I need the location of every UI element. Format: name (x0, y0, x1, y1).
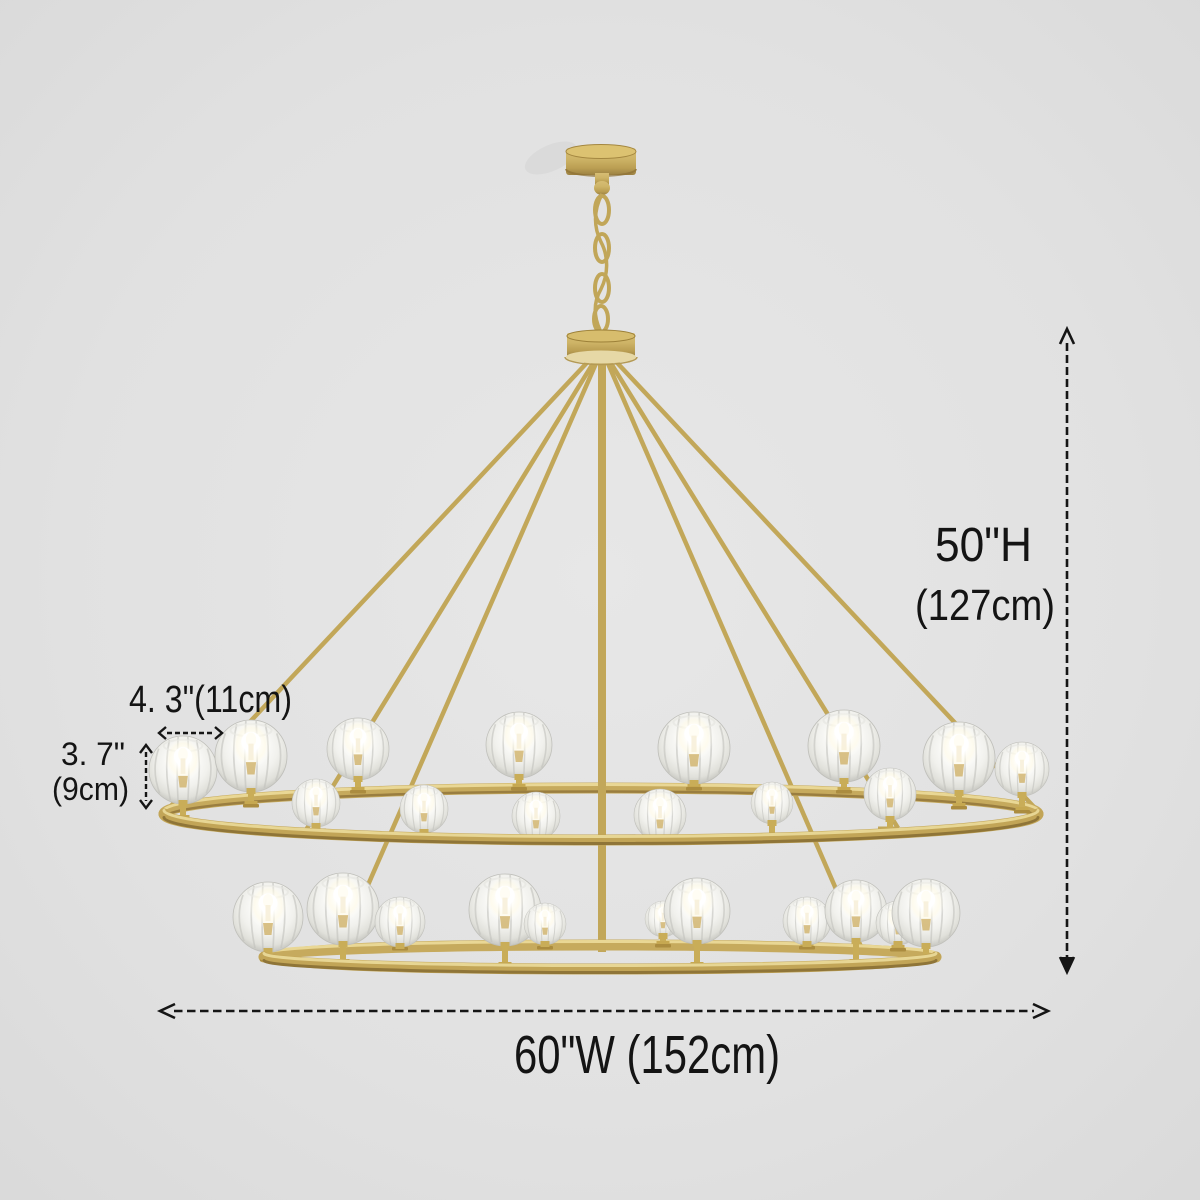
svg-text:(127cm): (127cm) (915, 581, 1055, 630)
svg-text:60"W (152cm): 60"W (152cm) (514, 1025, 780, 1085)
svg-text:4. 3"(11cm): 4. 3"(11cm) (129, 679, 292, 721)
svg-text:50"H: 50"H (935, 519, 1032, 572)
svg-text:3. 7": 3. 7" (61, 736, 125, 772)
svg-text:(9cm): (9cm) (52, 771, 129, 807)
